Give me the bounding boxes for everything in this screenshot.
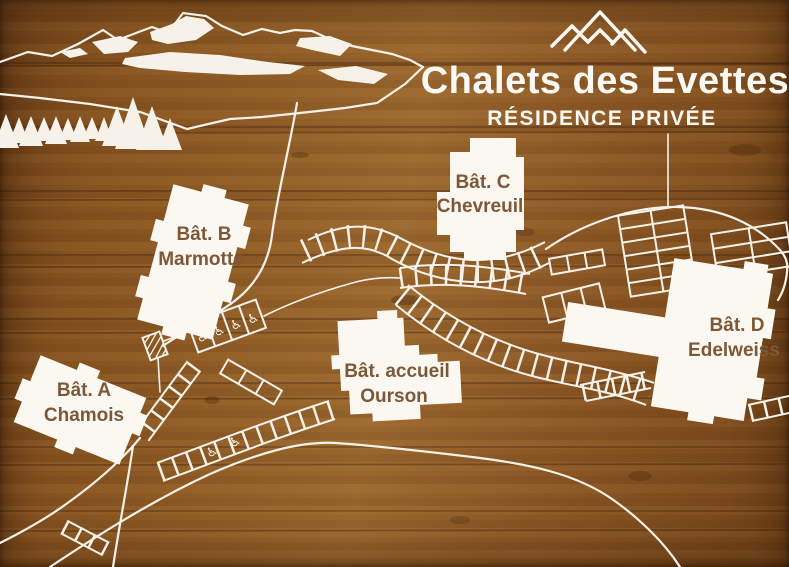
map-canvas: Chalets des Evettes RÉSIDENCE PRIVÉE ♿ ♿	[0, 0, 789, 567]
accessible-parking-icon: ♿	[245, 310, 261, 328]
accessible-parking-icon: ♿	[227, 433, 244, 451]
logo-mountain-icon	[552, 12, 645, 52]
crosswalk	[142, 332, 167, 361]
building-chamois-name: Bât. A	[57, 380, 111, 401]
building-edelweiss-name: Bât. D	[710, 315, 765, 336]
road-mid-connector	[264, 278, 400, 316]
page-subtitle: RÉSIDENCE PRIVÉE	[487, 107, 716, 130]
accessible-parking-icon: ♿	[228, 316, 244, 334]
building-chamois: Bât. A Chamois	[3, 345, 156, 475]
building-marmotte-subname: Marmotte	[158, 249, 244, 270]
building-ourson: Bât. accueil Ourson	[329, 307, 463, 424]
page-title: Chalets des Evettes	[421, 60, 789, 102]
parking-slots-small	[220, 360, 282, 405]
building-edelweiss-subname: Edelweiss	[688, 340, 780, 361]
building-chevreuil-name: Bât. C	[456, 172, 511, 193]
building-marmotte-name: Bât. B	[177, 224, 232, 245]
building-chevreuil-subname: Chevreuil	[437, 196, 524, 217]
mountain-range	[0, 13, 423, 129]
accessible-parking-icon: ♿	[204, 443, 221, 461]
building-chamois-subname: Chamois	[44, 405, 124, 426]
site-map-sign: Chalets des Evettes RÉSIDENCE PRIVÉE ♿ ♿	[0, 0, 789, 567]
building-ourson-name: Bât. accueil	[344, 361, 450, 382]
building-ourson-subname: Ourson	[360, 386, 428, 407]
road-connector	[158, 358, 160, 392]
building-chevreuil: Bât. C Chevreuil	[437, 138, 524, 260]
road-bottom-long	[50, 443, 680, 567]
parking-slots-small	[549, 249, 605, 274]
